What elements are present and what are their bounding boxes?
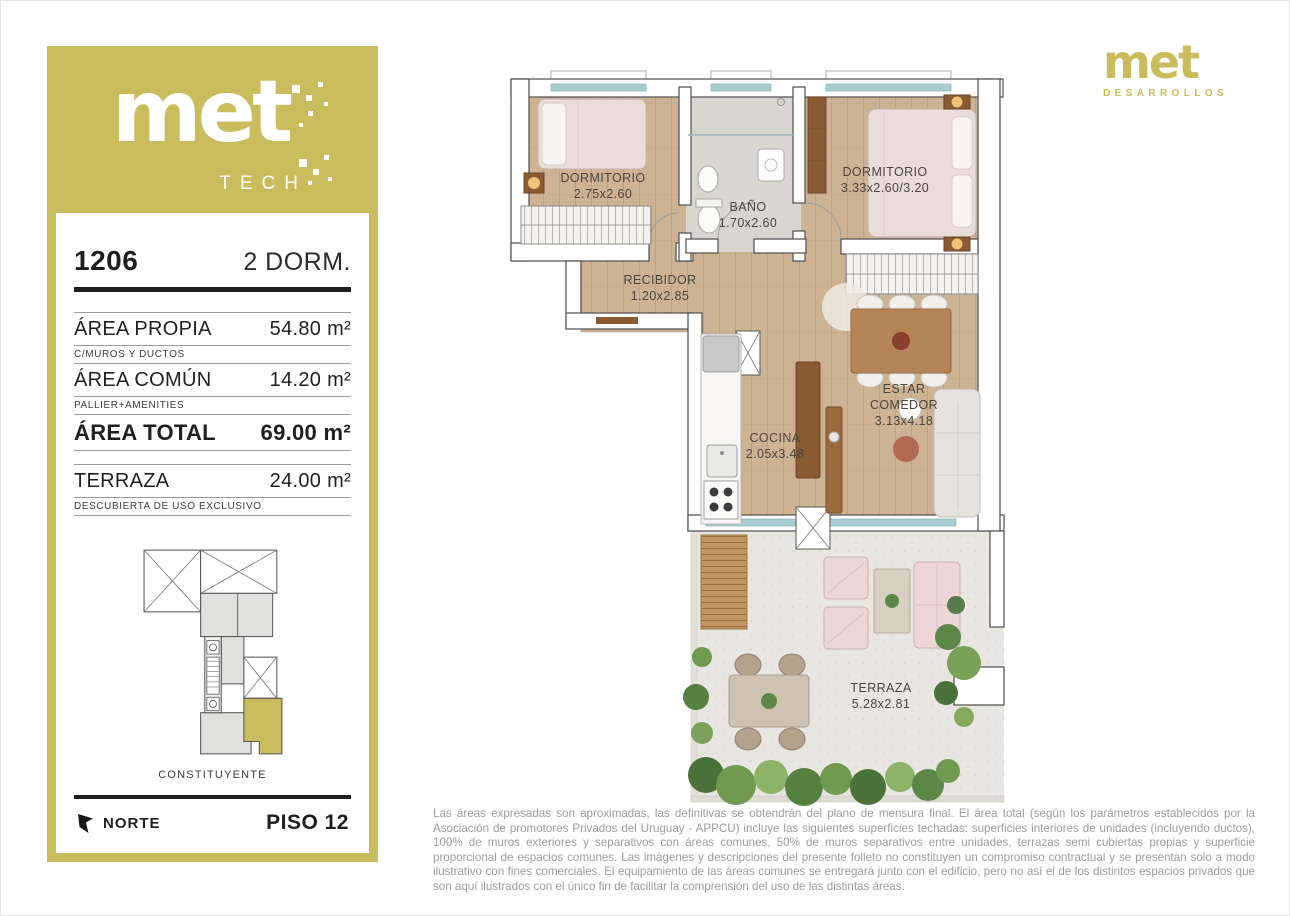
- area-caption: DESCUBIERTA DE USO EXCLUSIVO: [74, 498, 351, 515]
- area-label: ÁREA PROPIA: [74, 318, 212, 341]
- brand-wordmark: met: [1103, 41, 1245, 85]
- room-label-dormitorio-2: DORMITORIO 3.33x2.60/3.20: [841, 164, 929, 196]
- room-label-estar-comedor: ESTAR COMEDOR 3.13x4.18: [870, 381, 938, 429]
- terrace-deck: [701, 535, 747, 629]
- met-tech-logo: met TECH: [56, 55, 369, 213]
- area-value: 24.00 m²: [270, 470, 351, 493]
- floor-plan: DORMITORIO 2.75x2.60 BAÑO 1.70x2.60 DORM…: [496, 57, 1016, 807]
- brand-sub-wordmark: DESARROLLOS: [1103, 88, 1245, 99]
- room-dims: 2.75x2.60: [560, 186, 645, 202]
- closet: [846, 254, 978, 294]
- room-dims: 1.70x2.60: [719, 215, 778, 231]
- room-label-cocina: COCINA 2.05x3.48: [746, 430, 805, 462]
- area-label: ÁREA COMÚN: [74, 369, 211, 392]
- room-name: COMEDOR: [870, 397, 938, 413]
- area-row-terraza: TERRAZA 24.00 m²: [74, 465, 351, 497]
- room-dims: 3.33x2.60/3.20: [841, 180, 929, 196]
- area-caption: C/MUROS Y DUCTOS: [74, 346, 351, 363]
- area-value: 54.80 m²: [270, 318, 351, 341]
- unit-data-card: 1206 2 DORM. ÁREA PROPIA 54.80 m² C/MURO…: [56, 213, 369, 853]
- room-name: DORMITORIO: [841, 164, 929, 180]
- brochure-page: met TECH 1206 2 DORM. ÁREA PROP: [0, 0, 1290, 916]
- tall-wardrobe: [808, 97, 826, 193]
- pixel-dots-icon: [56, 55, 369, 213]
- room-dims: 1.20x2.85: [623, 288, 696, 304]
- north-arrow-icon: [76, 812, 95, 835]
- area-row-comun: ÁREA COMÚN 14.20 m²: [74, 364, 351, 396]
- north-indicator: NORTE: [76, 812, 161, 835]
- key-plan-diagram: [140, 546, 286, 758]
- room-dims: 3.13x4.18: [870, 413, 938, 429]
- area-row-propia: ÁREA PROPIA 54.80 m²: [74, 313, 351, 345]
- north-label: NORTE: [103, 815, 161, 832]
- room-name: TERRAZA: [850, 680, 911, 696]
- area-caption: PALLIER+AMENITIES: [74, 397, 351, 414]
- street-label: CONSTITUYENTE: [74, 769, 351, 781]
- area-label: ÁREA TOTAL: [74, 420, 216, 446]
- logo-sub-wordmark: TECH: [219, 173, 307, 195]
- area-value: 69.00 m²: [261, 420, 351, 446]
- area-value: 14.20 m²: [270, 369, 351, 392]
- legal-disclaimer: Las áreas expresadas son aproximadas, la…: [433, 807, 1255, 895]
- floor-label: PISO 12: [266, 811, 349, 835]
- divider: [74, 515, 351, 516]
- met-desarrollos-logo: met DESARROLLOS: [1103, 41, 1245, 99]
- kitchen-counter: [701, 334, 741, 524]
- area-label: TERRAZA: [74, 470, 169, 493]
- info-panel: met TECH 1206 2 DORM. ÁREA PROP: [47, 46, 378, 862]
- single-bed: [538, 99, 646, 169]
- room-label-terraza: TERRAZA 5.28x2.81: [850, 680, 911, 712]
- room-name: DORMITORIO: [560, 170, 645, 186]
- nightstand-lamp: [524, 173, 544, 193]
- room-name: RECIBIDOR: [623, 272, 696, 288]
- unit-header: 1206 2 DORM.: [74, 245, 351, 292]
- panel-footer: NORTE PISO 12: [74, 795, 351, 841]
- building-key-plan: CONSTITUYENTE: [74, 546, 351, 781]
- room-label-bano: BAÑO 1.70x2.60: [719, 199, 778, 231]
- room-name: BAÑO: [719, 199, 778, 215]
- room-label-dormitorio-1: DORMITORIO 2.75x2.60: [560, 170, 645, 202]
- room-label-recibidor: RECIBIDOR 1.20x2.85: [623, 272, 696, 304]
- area-row-total: ÁREA TOTAL 69.00 m²: [74, 415, 351, 450]
- room-dims: 2.05x3.48: [746, 446, 805, 462]
- dining-table: [851, 295, 951, 387]
- room-name: COCINA: [746, 430, 805, 446]
- unit-type: 2 DORM.: [243, 248, 351, 277]
- room-name: ESTAR: [870, 381, 938, 397]
- wardrobe: [521, 206, 651, 244]
- room-dims: 5.28x2.81: [850, 696, 911, 712]
- unit-number: 1206: [74, 245, 138, 277]
